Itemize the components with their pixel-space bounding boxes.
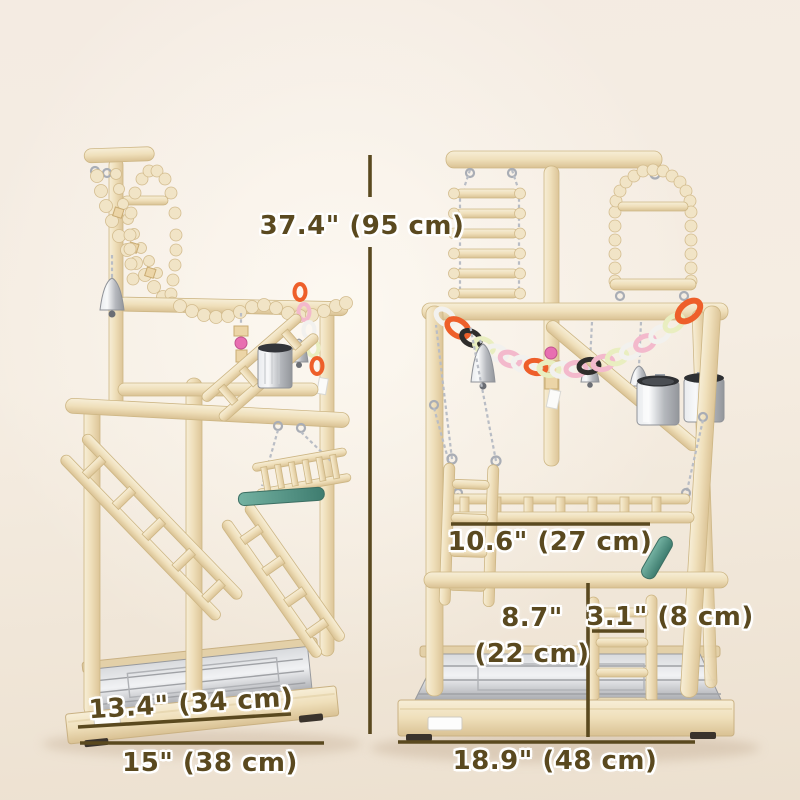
bead-arch-swing — [609, 164, 697, 300]
base-foot — [406, 734, 432, 741]
base-depth-label: 15" (38 cm) — [122, 748, 298, 778]
right-base-front — [398, 700, 734, 741]
base-width-label: 18.9" (48 cm) — [453, 746, 658, 776]
left-top-rung — [122, 196, 168, 205]
left-top-perch — [84, 147, 154, 163]
steel-cup — [258, 344, 292, 389]
teal-perch — [238, 487, 325, 506]
brand-label — [428, 717, 462, 730]
steel-cup-1 — [637, 374, 679, 425]
ladder-height-cm: (22 cm) — [474, 636, 589, 672]
right-lower-bar — [424, 572, 728, 588]
left-long-bar — [65, 398, 349, 428]
bird-playstand-illustration — [0, 0, 800, 800]
ladder-height-label: 8.7" (22 cm) — [474, 600, 589, 672]
overall-height-label: 37.4" (95 cm) — [260, 211, 465, 241]
ladder-width-label: 3.1" (8 cm) — [586, 602, 754, 632]
right-top-bar — [446, 151, 662, 168]
platform-width-label: 10.6" (27 cm) — [448, 527, 653, 557]
left-swing — [252, 422, 351, 497]
ladder-height-inches: 8.7" — [474, 600, 589, 636]
base-foot — [690, 732, 716, 739]
bead-charm — [234, 313, 248, 362]
product-dimension-image: 37.4" (95 cm) 10.6" (27 cm) 8.7" (22 cm)… — [0, 0, 800, 800]
